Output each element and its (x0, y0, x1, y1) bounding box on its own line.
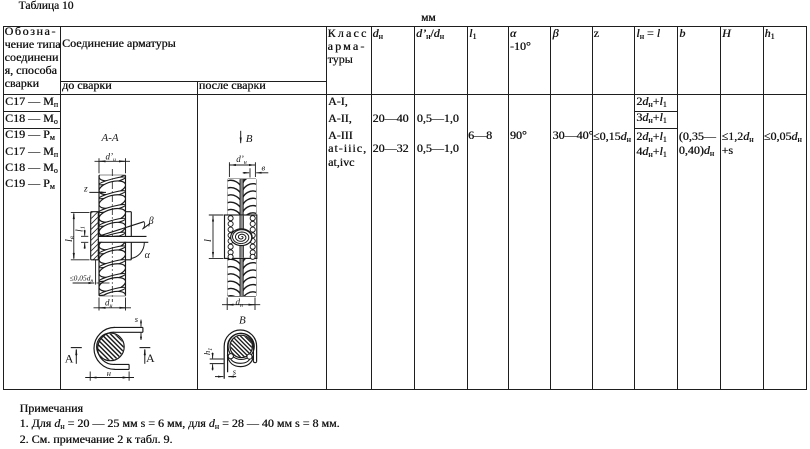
svg-text:в: в (262, 162, 266, 172)
svg-text:dн: dн (236, 297, 244, 309)
svg-text:А-А: А-А (101, 132, 119, 144)
svg-text:h1: h1 (202, 348, 214, 355)
svg-text:l: l (203, 239, 214, 242)
svg-text:z: z (83, 185, 88, 195)
svg-text:≤0,05dн: ≤0,05dн (70, 274, 94, 285)
svg-text:В: В (239, 315, 246, 327)
svg-text:lв: lв (64, 236, 76, 242)
svg-text:β: β (148, 216, 154, 227)
svg-text:α: α (145, 250, 151, 261)
svg-text:d’н: d’н (236, 154, 247, 166)
svg-text:А: А (146, 351, 155, 365)
svg-text:s: s (233, 367, 237, 377)
svg-text:В: В (246, 133, 253, 145)
svg-text:s: s (135, 314, 139, 324)
svg-text:А: А (65, 352, 74, 366)
svg-text:н: н (107, 368, 111, 378)
svg-text:l1: l1 (74, 226, 86, 232)
